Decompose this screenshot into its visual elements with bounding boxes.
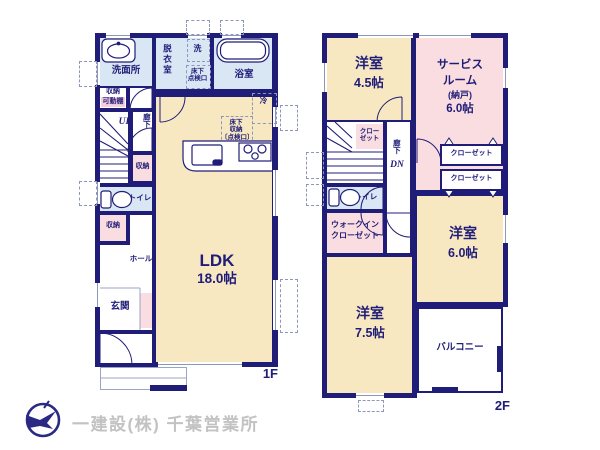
room-size-label: 6.0帖 (426, 103, 494, 116)
vent-box (280, 279, 298, 333)
room-label: 収納 (100, 222, 126, 230)
room-label: 洗面所 (100, 66, 152, 77)
closet-label: クローゼット (356, 128, 383, 143)
corridor-label: 廊下 (142, 113, 150, 128)
vent-box (79, 61, 97, 87)
washer-label: 洗 (187, 45, 208, 54)
floor-label-2f: 2F (482, 399, 510, 414)
window (273, 280, 278, 330)
balcony-railing (497, 346, 503, 372)
1f-entrance-lower (100, 334, 152, 363)
balcony-railing (432, 387, 458, 393)
closet-label: クローゼット (441, 150, 502, 158)
vent-box (186, 20, 210, 35)
up-label: UP (112, 117, 138, 128)
room-size-label: 4.5帖 (341, 76, 397, 90)
window (356, 393, 384, 398)
1f-shoe-cabinet (140, 293, 152, 328)
vent-box (358, 400, 384, 412)
dn-label: DN (384, 160, 410, 171)
logo-circle (27, 404, 59, 436)
1f-washroom (100, 38, 152, 86)
room-size-label: 7.5帖 (341, 326, 399, 340)
room-size-label: 6.0帖 (435, 246, 491, 260)
company-logo (20, 397, 66, 443)
room-label: (納戸) (426, 90, 494, 100)
company-name: 一建設(株) 千葉営業所 (72, 410, 259, 435)
wic-label: クローゼット (329, 232, 381, 241)
room-size-label: 18.0帖 (188, 271, 246, 286)
room-label: 洋室 (341, 306, 399, 322)
room-label: トイレ (352, 193, 380, 201)
room-label: 浴室 (222, 70, 266, 81)
window (503, 215, 508, 243)
porch-step (150, 385, 187, 391)
room-label: 洋室 (341, 56, 397, 72)
window (322, 63, 327, 92)
vent-box (220, 20, 244, 35)
1f-bathroom (214, 38, 272, 89)
wic-label: ウォークイン (329, 221, 381, 230)
window (419, 33, 471, 38)
room-label: LDK (188, 251, 246, 270)
room-label: 収納 (100, 88, 126, 96)
window (503, 68, 508, 88)
room-label: 脱衣室 (162, 44, 172, 76)
movable-shelf-badge: 可動棚 (101, 97, 125, 107)
vent-box (280, 105, 298, 131)
room-label: 洋室 (435, 226, 491, 242)
floor-label-1f: 1F (250, 367, 278, 382)
room-label: トイレ (128, 194, 152, 202)
bird-beak (44, 401, 49, 408)
1f-washroom-doorway (130, 88, 152, 108)
room-label: 収納 (133, 163, 152, 171)
room-label: ルーム (426, 75, 494, 88)
room-label: 玄関 (104, 302, 136, 313)
window (95, 283, 100, 307)
window (273, 170, 278, 216)
window (106, 33, 130, 38)
vent-box (79, 181, 97, 206)
room-label: サービス (426, 59, 494, 72)
fridge-label: 冷 (252, 97, 275, 105)
floor-plan-image: 洗面所 収納 可動棚 脱衣室 洗 床下点検口 浴室 冷 床下収納〔点検口〕 UP… (0, 0, 600, 450)
corridor-label: 廊下 (392, 139, 400, 154)
2f-room75 (327, 257, 412, 393)
room-label: ホール (129, 255, 153, 263)
vent-box (306, 184, 324, 206)
1f-ldk (156, 97, 272, 362)
window (358, 33, 413, 38)
vent-box (306, 152, 324, 179)
balcony-label: バルコニー (428, 343, 492, 354)
closet-label: クローゼット (441, 175, 502, 183)
hatch-label: 床下点検口 (186, 68, 209, 83)
bird-icon (26, 411, 56, 429)
ufs-label: 床下収納〔点検口〕 (221, 119, 251, 141)
